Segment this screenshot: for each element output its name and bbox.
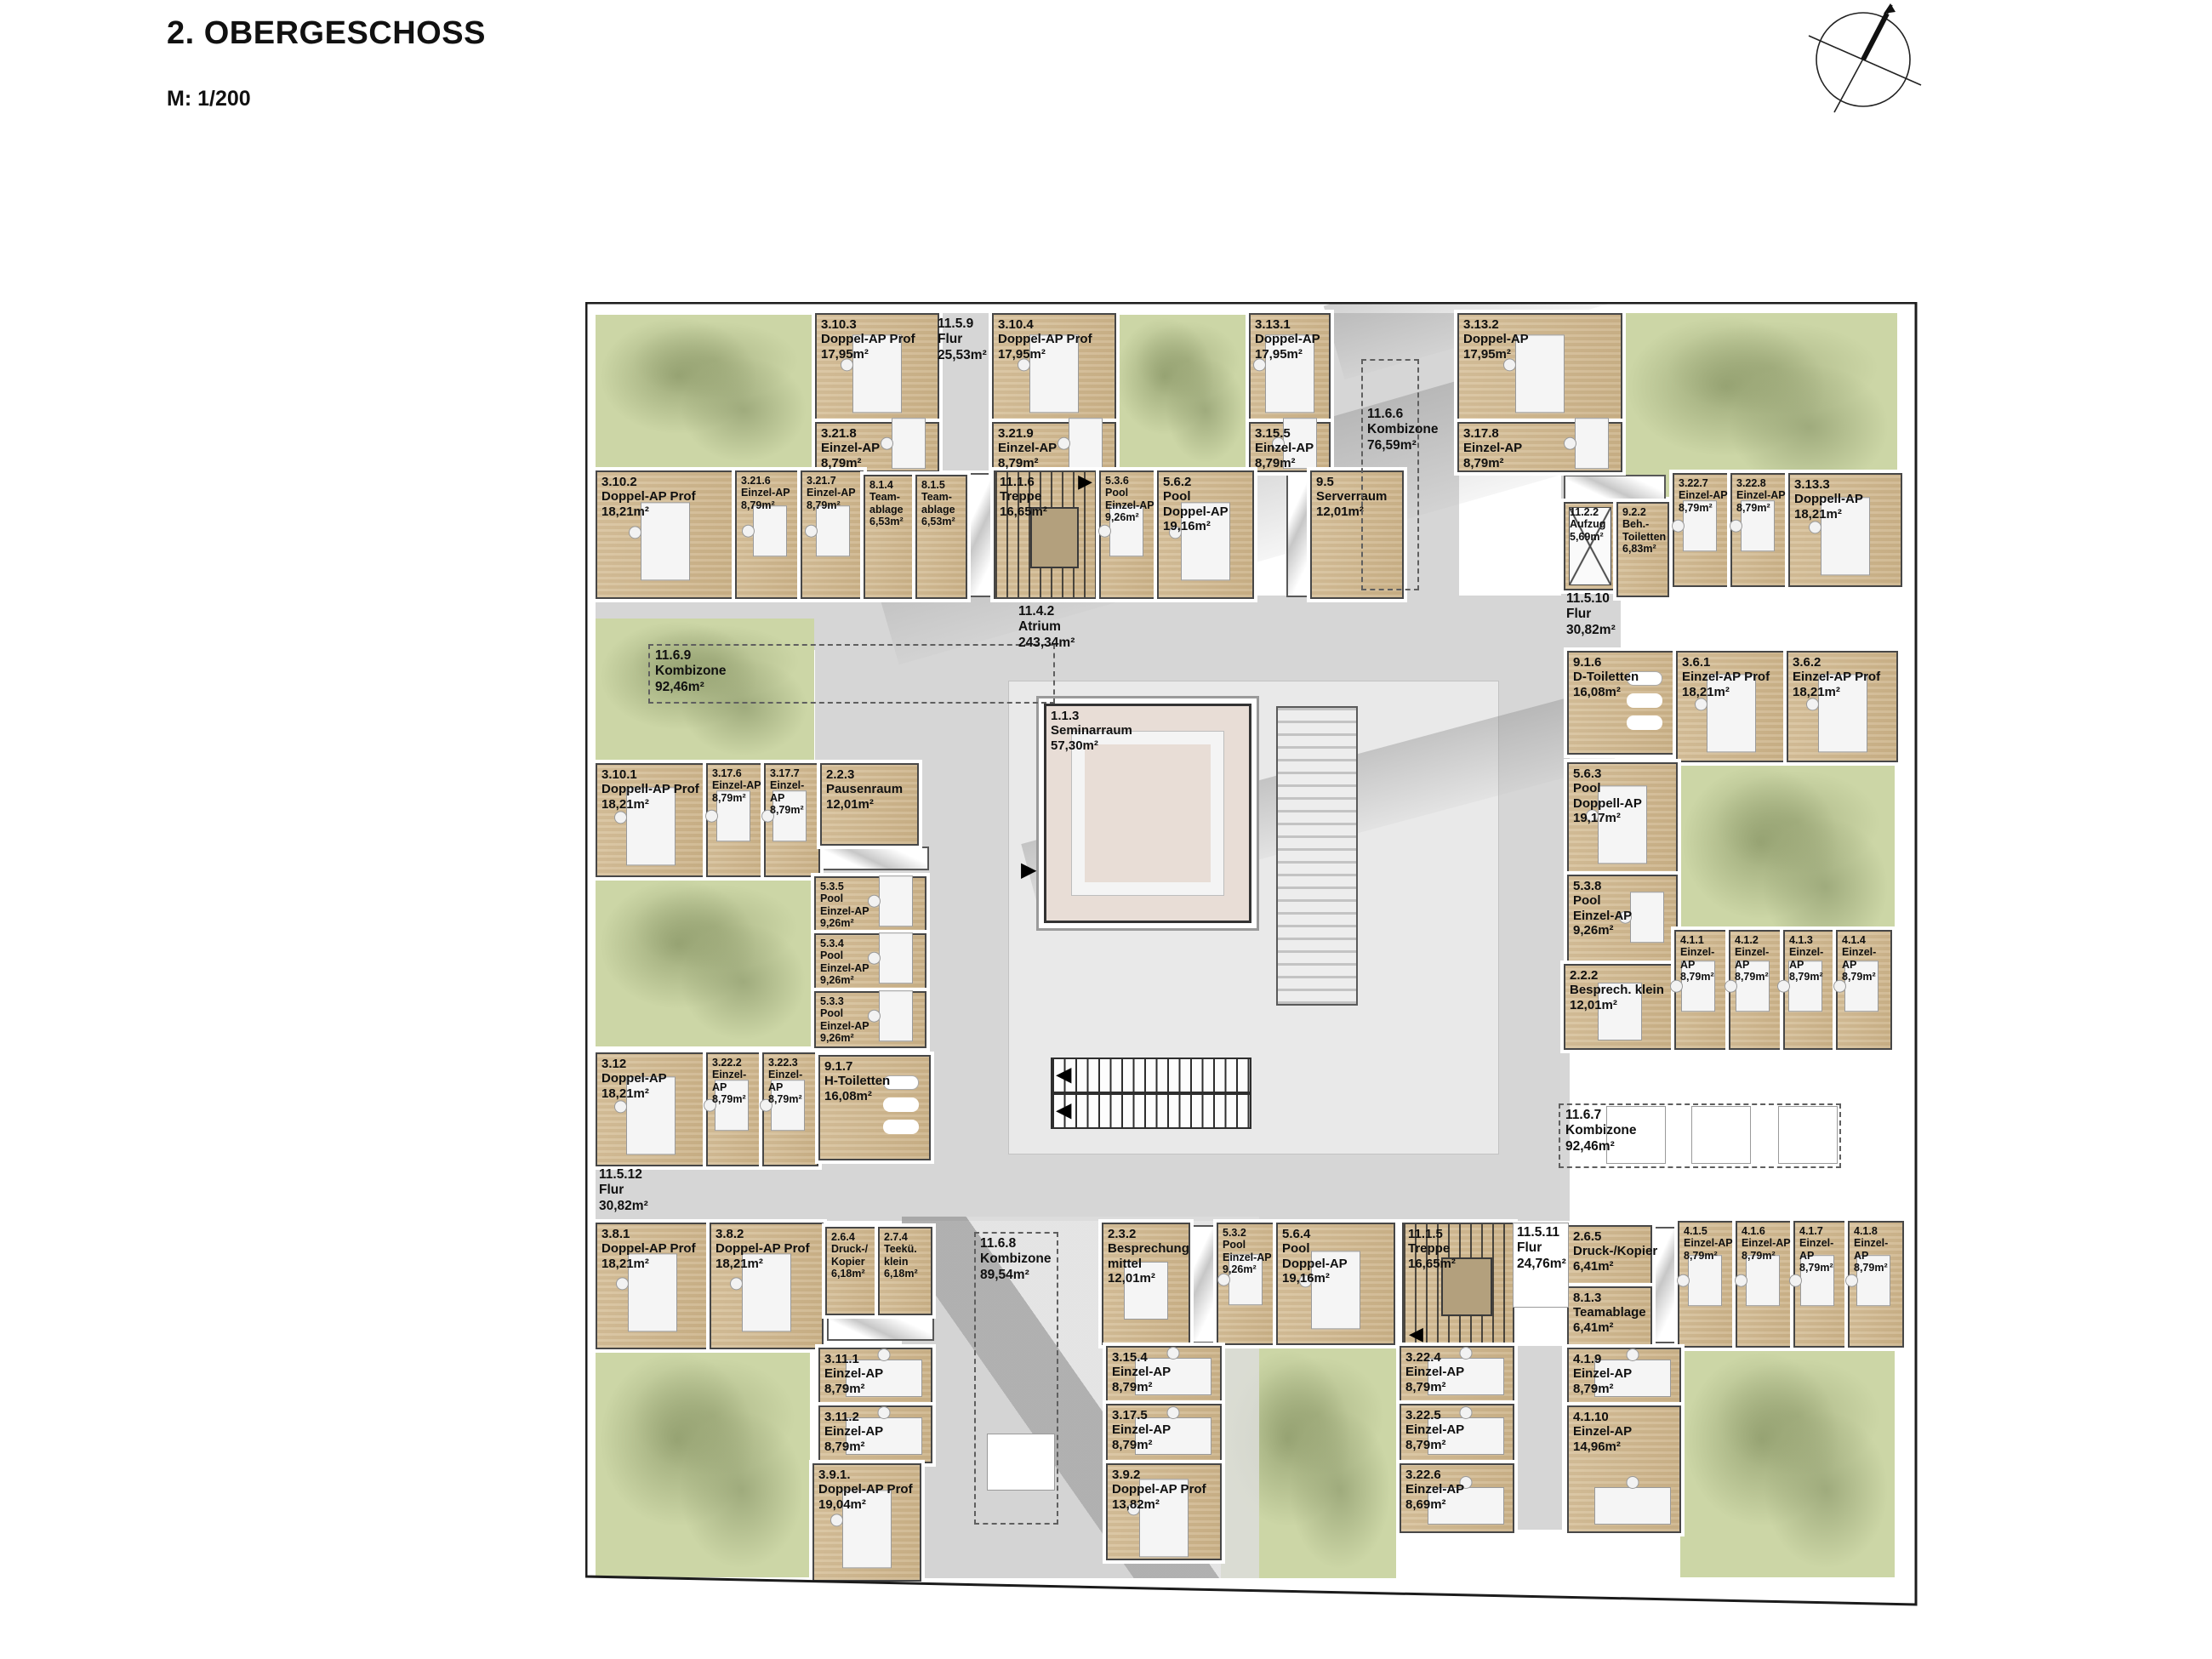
room-3-17-8-label: 3.17.8 Einzel-AP 8,79m² (1463, 426, 1522, 470)
zone-label-11-6-9: 11.6.9 Kombizone 92,46m² (655, 648, 727, 695)
room-4-1-7-label: 4.1.7 Einzel-AP 8,79m² (1799, 1225, 1846, 1274)
scale-note: M: 1/200 (167, 87, 251, 111)
desk-icon (1746, 1255, 1780, 1306)
room-4-1-3-label: 4.1.3 Einzel-AP 8,79m² (1789, 934, 1834, 983)
room-9-1-6-label: 9.1.6 D-Toiletten 16,08m² (1573, 655, 1639, 699)
room-5-3-3: 5.3.3 Pool Einzel-AP 9,26m² (814, 991, 926, 1048)
room-8-1-4: 8.1.4 Team- ablage 6,53m² (864, 475, 915, 599)
room-3-22-3-label: 3.22.3 Einzel-AP 8,79m² (768, 1057, 817, 1106)
room-3-22-5-label: 3.22.5 Einzel-AP 8,79m² (1405, 1408, 1464, 1452)
room-11-2-2: 11.2.2 Aufzug 5,69m² (1564, 502, 1616, 590)
room-5-6-3-label: 5.6.3 Pool Doppell-AP 19,17m² (1573, 767, 1642, 825)
room-2-7-4: 2.7.4 Teekü. klein 6,18m² (878, 1227, 932, 1315)
room-3-13-2: 3.13.2 Doppel-AP 17,95m² (1457, 313, 1622, 422)
room-8-1-5-label: 8.1.5 Team- ablage 6,53m² (921, 479, 955, 528)
room-4-1-6-label: 4.1.6 Einzel-AP 8,79m² (1742, 1225, 1791, 1262)
desk-icon (1575, 418, 1609, 469)
room-3-10-3: 3.10.3 Doppel-AP Prof 17,95m² (815, 313, 939, 422)
desk-icon (1069, 418, 1103, 469)
room-4-1-10-label: 4.1.10 Einzel-AP 14,96m² (1573, 1410, 1632, 1454)
zone-label-11-4-2: 11.4.2 Atrium 243,34m² (1018, 604, 1075, 651)
room-2-2-3: 2.2.3 Pausenraum 12,01m² (820, 763, 919, 846)
zone-label-11-5-12: 11.5.12 Flur 30,82m² (599, 1167, 648, 1214)
room-3-21-6: 3.21.6 Einzel-AP 8,79m² (735, 470, 801, 599)
room-2-6-4: 2.6.4 Druck-/ Kopier 6,18m² (825, 1227, 878, 1315)
room-9-2-2: 9.2.2 Beh.- Toiletten 6,83m² (1616, 502, 1669, 597)
room-2-2-2-label: 2.2.2 Besprech. klein 12,01m² (1570, 968, 1664, 1012)
zone-label-11-6-6: 11.6.6 Kombizone 76,59m² (1367, 407, 1439, 453)
room-1-1-3: 1.1.3 Seminarraum 57,30m² (1044, 704, 1251, 923)
room-3-11-2: 3.11.2 Einzel-AP 8,79m² (818, 1405, 932, 1463)
stair-direction-arrow-icon: ◀ (1409, 1323, 1423, 1345)
room-3-22-4: 3.22.4 Einzel-AP 8,79m² (1400, 1346, 1514, 1404)
floor-plan-canvas: 3.10.3 Doppel-AP Prof 17,95m²3.10.4 Dopp… (585, 302, 1918, 1609)
room-2-3-2-label: 2.3.2 Besprechung mittel 12,01m² (1108, 1227, 1189, 1286)
room-3-12: 3.12 Doppel-AP 18,21m² (596, 1052, 706, 1166)
room-5-6-2: 5.6.2 Pool Doppel-AP 19,16m² (1157, 470, 1254, 599)
room-2-2-3-label: 2.2.3 Pausenraum 12,01m² (826, 767, 903, 812)
room-3-10-2: 3.10.2 Doppel-AP Prof 18,21m² (596, 470, 735, 599)
stair-direction-arrow-icon: ▶ (1078, 470, 1092, 493)
room-3-6-1-label: 3.6.1 Einzel-AP Prof 18,21m² (1682, 655, 1770, 699)
room-3-15-4-label: 3.15.4 Einzel-AP 8,79m² (1112, 1350, 1171, 1394)
room-8-1-4-label: 8.1.4 Team- ablage 6,53m² (869, 479, 904, 528)
desk-icon (1630, 892, 1664, 943)
room-9-2-2-label: 9.2.2 Beh.- Toiletten 6,83m² (1622, 506, 1666, 556)
desk-icon (892, 418, 926, 469)
room-3-10-1: 3.10.1 Doppell-AP Prof 18,21m² (596, 763, 706, 877)
room-9-1-6: 9.1.6 D-Toiletten 16,08m² (1567, 651, 1674, 755)
wall-niche-wedge (818, 847, 929, 870)
room-5-3-2: 5.3.2 Pool Einzel-AP 9,26m² (1217, 1223, 1276, 1345)
room-3-11-2-label: 3.11.2 Einzel-AP 8,79m² (824, 1410, 883, 1454)
north-arrow-icon (1802, 3, 1955, 144)
room-3-17-5: 3.17.5 Einzel-AP 8,79m² (1106, 1404, 1222, 1463)
room-3-17-7: 3.17.7 Einzel-AP 8,79m² (764, 763, 820, 877)
room-5-3-5-label: 5.3.5 Pool Einzel-AP 9,26m² (820, 881, 869, 930)
tree-canopy (1621, 313, 1897, 497)
tree-canopy (596, 315, 813, 468)
room-3-17-6-label: 3.17.6 Einzel-AP 8,79m² (712, 767, 761, 804)
room-3-10-4-label: 3.10.4 Doppel-AP Prof 17,95m² (998, 317, 1092, 362)
atrium-louver (1276, 706, 1358, 1006)
room-3-21-9-label: 3.21.9 Einzel-AP 8,79m² (998, 426, 1057, 470)
room-3-13-3: 3.13.3 Doppell-AP 18,21m² (1788, 473, 1902, 587)
room-4-1-4-label: 4.1.4 Einzel-AP 8,79m² (1842, 934, 1890, 983)
room-3-22-5: 3.22.5 Einzel-AP 8,79m² (1400, 1404, 1514, 1463)
direction-marker-icon: ▶ (1021, 858, 1036, 882)
room-8-1-3: 8.1.3 Teamablage 6,41m² (1567, 1286, 1652, 1346)
room-3-8-1-label: 3.8.1 Doppel-AP Prof 18,21m² (601, 1227, 696, 1271)
room-4-1-2-label: 4.1.2 Einzel-AP 8,79m² (1735, 934, 1782, 983)
room-8-1-5: 8.1.5 Team- ablage 6,53m² (915, 475, 967, 599)
room-4-1-1-label: 4.1.1 Einzel-AP 8,79m² (1680, 934, 1727, 983)
room-3-8-2: 3.8.2 Doppel-AP Prof 18,21m² (710, 1223, 824, 1349)
room-8-1-3-label: 8.1.3 Teamablage 6,41m² (1573, 1291, 1646, 1335)
room-3-17-7-label: 3.17.7 Einzel-AP 8,79m² (770, 767, 818, 817)
room-3-10-1-label: 3.10.1 Doppell-AP Prof 18,21m² (601, 767, 699, 812)
room-11-1-6-label: 11.1.6 Treppe 16,65m² (1000, 475, 1047, 519)
room-3-22-8-label: 3.22.8 Einzel-AP 8,79m² (1736, 477, 1786, 514)
zone-label-11-6-7: 11.6.7 Kombizone 92,46m² (1565, 1108, 1637, 1154)
furniture-box (1778, 1106, 1838, 1164)
room-3-15-5: 3.15.5 Einzel-AP 8,79m² (1249, 422, 1331, 472)
room-9-1-7: 9.1.7 H-Toiletten 16,08m² (818, 1055, 931, 1160)
room-3-15-5-label: 3.15.5 Einzel-AP 8,79m² (1255, 426, 1314, 470)
room-3-8-2-label: 3.8.2 Doppel-AP Prof 18,21m² (715, 1227, 810, 1271)
room-5-6-3: 5.6.3 Pool Doppell-AP 19,17m² (1567, 762, 1678, 875)
room-3-21-8-label: 3.21.8 Einzel-AP 8,79m² (821, 426, 880, 470)
desk-icon (879, 932, 913, 983)
room-2-3-2: 2.3.2 Besprechung mittel 12,01m² (1102, 1223, 1190, 1345)
room-3-10-4: 3.10.4 Doppel-AP Prof 17,95m² (992, 313, 1116, 422)
room-5-3-8-label: 5.3.8 Pool Einzel-AP 9,26m² (1573, 879, 1632, 938)
wall-niche-wedge (827, 1317, 934, 1341)
room-4-1-1: 4.1.1 Einzel-AP 8,79m² (1674, 930, 1729, 1050)
room-3-9-1: 3.9.1. Doppel-AP Prof 19,04m² (812, 1463, 921, 1582)
room-5-3-6: 5.3.6 Pool Einzel-AP 9,26m² (1099, 470, 1157, 599)
floor-plan-page: 2. OBERGESCHOSS M: 1/200 3.10.3 Doppel-A… (0, 0, 2212, 1659)
kombizone-dashed-boundary (1361, 359, 1419, 590)
room-5-6-4: 5.6.4 Pool Doppel-AP 19,16m² (1276, 1223, 1395, 1345)
wall-niche-wedge (1189, 1225, 1215, 1343)
room-3-21-6-label: 3.21.6 Einzel-AP 8,79m² (741, 475, 790, 511)
room-5-3-6-label: 5.3.6 Pool Einzel-AP 9,26m² (1105, 475, 1154, 524)
room-3-13-3-label: 3.13.3 Doppell-AP 18,21m² (1794, 477, 1863, 522)
room-4-1-5: 4.1.5 Einzel-AP 8,79m² (1678, 1221, 1736, 1348)
desk-icon (753, 505, 787, 556)
room-5-6-4-label: 5.6.4 Pool Doppel-AP 19,16m² (1282, 1227, 1348, 1286)
room-3-22-4-label: 3.22.4 Einzel-AP 8,79m² (1405, 1350, 1464, 1394)
room-3-13-2-label: 3.13.2 Doppel-AP 17,95m² (1463, 317, 1529, 362)
room-5-3-4: 5.3.4 Pool Einzel-AP 9,26m² (814, 933, 926, 991)
room-3-10-2-label: 3.10.2 Doppel-AP Prof 18,21m² (601, 475, 696, 519)
room-3-10-3-label: 3.10.3 Doppel-AP Prof 17,95m² (821, 317, 915, 362)
room-9-1-7-label: 9.1.7 H-Toiletten 16,08m² (824, 1059, 890, 1103)
room-3-22-7: 3.22.7 Einzel-AP 8,79m² (1673, 473, 1730, 587)
wall-niche-wedge (1564, 475, 1666, 500)
room-3-11-1-label: 3.11.1 Einzel-AP 8,79m² (824, 1352, 883, 1396)
room-1-1-3-label: 1.1.3 Seminarraum 57,30m² (1051, 709, 1132, 753)
room-3-13-1-label: 3.13.1 Doppel-AP 17,95m² (1255, 317, 1320, 362)
room-3-22-8: 3.22.8 Einzel-AP 8,79m² (1730, 473, 1788, 587)
tree-canopy (596, 876, 812, 1046)
tree-canopy (1113, 315, 1249, 469)
room-5-3-2-label: 5.3.2 Pool Einzel-AP 9,26m² (1223, 1227, 1272, 1276)
room-4-1-9-label: 4.1.9 Einzel-AP 8,79m² (1573, 1352, 1632, 1396)
stair-direction-arrow-icon: ◀ (1056, 1062, 1071, 1086)
room-3-6-2: 3.6.2 Einzel-AP Prof 18,21m² (1787, 651, 1898, 762)
room-3-17-6: 3.17.6 Einzel-AP 8,79m² (706, 763, 764, 877)
zone-label-11-6-8: 11.6.8 Kombizone 89,54m² (980, 1236, 1052, 1283)
room-11-2-2-label: 11.2.2 Aufzug 5,69m² (1570, 506, 1605, 543)
room-3-17-5-label: 3.17.5 Einzel-AP 8,79m² (1112, 1408, 1171, 1452)
wall-niche-wedge (968, 473, 995, 597)
room-3-22-3: 3.22.3 Einzel-AP 8,79m² (762, 1052, 818, 1166)
room-4-1-10: 4.1.10 Einzel-AP 14,96m² (1567, 1405, 1681, 1533)
room-2-7-4-label: 2.7.4 Teekü. klein 6,18m² (884, 1231, 918, 1280)
room-2-2-2: 2.2.2 Besprech. klein 12,01m² (1564, 964, 1675, 1050)
room-11-1-5: 11.1.5 Treppe 16,65m²◀ (1402, 1223, 1514, 1345)
room-2-6-4-label: 2.6.4 Druck-/ Kopier 6,18m² (831, 1231, 868, 1280)
room-4-1-6: 4.1.6 Einzel-AP 8,79m² (1736, 1221, 1793, 1348)
room-5-3-8: 5.3.8 Pool Einzel-AP 9,26m² (1567, 875, 1678, 967)
zone-label-11-5-10: 11.5.10 Flur 30,82m² (1566, 591, 1616, 638)
room-3-6-1: 3.6.1 Einzel-AP Prof 18,21m² (1676, 651, 1787, 762)
desk-icon (1688, 1255, 1722, 1306)
tree-canopy (1680, 1348, 1895, 1577)
room-2-6-5-label: 2.6.5 Druck-/Kopier 6,41m² (1573, 1229, 1657, 1274)
room-3-17-8: 3.17.8 Einzel-AP 8,79m² (1457, 422, 1622, 472)
room-3-8-1: 3.8.1 Doppel-AP Prof 18,21m² (596, 1223, 710, 1349)
room-5-3-4-label: 5.3.4 Pool Einzel-AP 9,26m² (820, 938, 869, 987)
wall-niche-wedge (1286, 473, 1312, 597)
room-3-13-1: 3.13.1 Doppel-AP 17,95m² (1249, 313, 1331, 422)
page-title: 2. OBERGESCHOSS (167, 15, 486, 52)
room-3-21-7-label: 3.21.7 Einzel-AP 8,79m² (807, 475, 856, 511)
room-5-3-3-label: 5.3.3 Pool Einzel-AP 9,26m² (820, 995, 869, 1045)
room-4-1-5-label: 4.1.5 Einzel-AP 8,79m² (1684, 1225, 1733, 1262)
room-3-9-2: 3.9.2 Doppel-AP Prof 13,82m² (1106, 1463, 1222, 1560)
room-11-1-5-label: 11.1.5 Treppe 16,65m² (1408, 1227, 1456, 1271)
room-4-1-7: 4.1.7 Einzel-AP 8,79m² (1793, 1221, 1848, 1348)
room-4-1-8-label: 4.1.8 Einzel-AP 8,79m² (1854, 1225, 1902, 1274)
desk-icon (879, 875, 913, 926)
room-4-1-8: 4.1.8 Einzel-AP 8,79m² (1848, 1221, 1904, 1348)
room-3-22-6: 3.22.6 Einzel-AP 8,69m² (1400, 1463, 1514, 1533)
atrium-corridor-zone (1513, 1346, 1562, 1530)
room-3-21-8: 3.21.8 Einzel-AP 8,79m² (815, 422, 939, 472)
desk-icon (1594, 1487, 1671, 1525)
desk-icon (816, 505, 850, 556)
room-3-15-4: 3.15.4 Einzel-AP 8,79m² (1106, 1346, 1222, 1404)
room-11-1-6: 11.1.6 Treppe 16,65m²▶ (994, 470, 1099, 599)
atrium-stair-run: ◀ (1051, 1058, 1251, 1093)
atrium-stair-run: ◀ (1051, 1093, 1251, 1129)
room-5-6-2-label: 5.6.2 Pool Doppel-AP 19,16m² (1163, 475, 1229, 533)
room-3-9-1-label: 3.9.1. Doppel-AP Prof 19,04m² (818, 1468, 913, 1512)
room-3-22-6-label: 3.22.6 Einzel-AP 8,69m² (1405, 1468, 1464, 1512)
room-3-11-1: 3.11.1 Einzel-AP 8,79m² (818, 1348, 932, 1405)
room-3-22-2: 3.22.2 Einzel-AP 8,79m² (706, 1052, 762, 1166)
room-4-1-4: 4.1.4 Einzel-AP 8,79m² (1836, 930, 1892, 1050)
stair-direction-arrow-icon: ◀ (1056, 1097, 1071, 1122)
room-4-1-3: 4.1.3 Einzel-AP 8,79m² (1783, 930, 1836, 1050)
room-3-21-7: 3.21.7 Einzel-AP 8,79m² (801, 470, 864, 599)
room-3-9-2-label: 3.9.2 Doppel-AP Prof 13,82m² (1112, 1468, 1206, 1512)
room-3-22-2-label: 3.22.2 Einzel-AP 8,79m² (712, 1057, 761, 1106)
room-2-6-5: 2.6.5 Druck-/Kopier 6,41m² (1567, 1225, 1652, 1286)
zone-label-11-5-9: 11.5.9 Flur 25,53m² (938, 316, 987, 363)
desk-icon (879, 990, 913, 1041)
room-3-12-label: 3.12 Doppel-AP 18,21m² (601, 1057, 667, 1101)
tree-canopy (596, 1348, 810, 1577)
zone-label-11-5-11: 11.5.11 Flur 24,76m² (1517, 1225, 1566, 1272)
room-3-22-7-label: 3.22.7 Einzel-AP 8,79m² (1679, 477, 1728, 514)
seminar-tables-icon (1072, 732, 1223, 895)
room-3-6-2-label: 3.6.2 Einzel-AP Prof 18,21m² (1793, 655, 1880, 699)
room-4-1-2: 4.1.2 Einzel-AP 8,79m² (1729, 930, 1783, 1050)
furniture-box (1691, 1106, 1751, 1164)
furniture-box (987, 1434, 1055, 1491)
room-5-3-5: 5.3.5 Pool Einzel-AP 9,26m² (814, 876, 926, 933)
room-4-1-9: 4.1.9 Einzel-AP 8,79m² (1567, 1348, 1681, 1405)
room-3-21-9: 3.21.9 Einzel-AP 8,79m² (992, 422, 1116, 472)
